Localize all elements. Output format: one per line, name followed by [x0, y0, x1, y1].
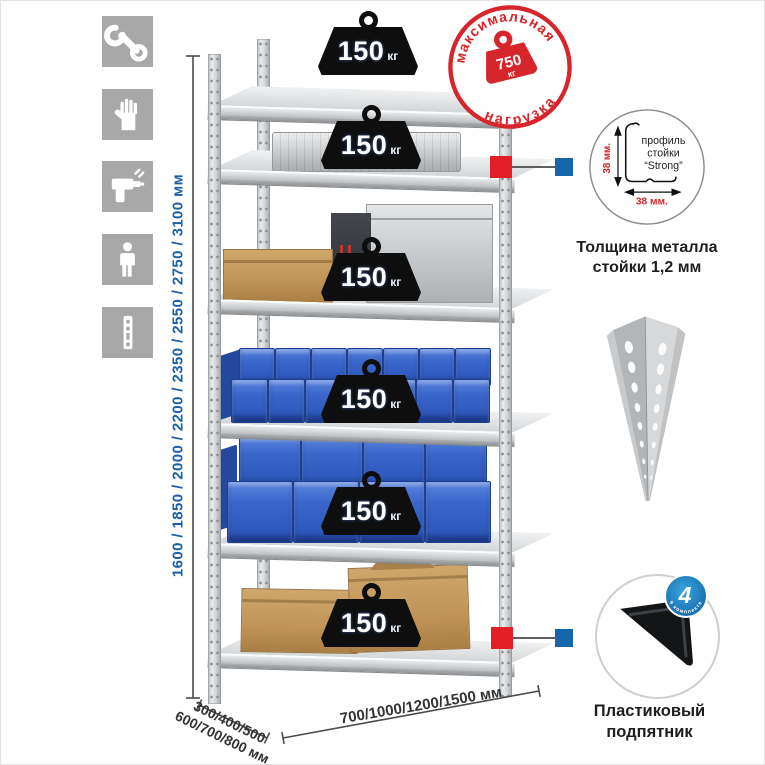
blue-bin-large [227, 481, 293, 543]
profile-label-line3: “Strong” [644, 160, 683, 172]
shelf-load-badge: 150кг [321, 105, 421, 169]
height-dimension-label: 1600 / 1850 / 2000 / 2200 / 2350 / 2550 … [170, 96, 187, 656]
blue-bin [453, 379, 490, 423]
rack-post-front-left [208, 54, 221, 704]
drill-icon [102, 161, 153, 212]
blue-bin [231, 379, 268, 423]
metal-thickness-caption: Толщина металла стойки 1,2 мм [564, 238, 730, 277]
shelf-load-badge: 150кг [318, 11, 418, 75]
load-unit: кг [390, 143, 401, 157]
load-value: 150 [341, 608, 388, 639]
load-value: 150 [341, 262, 388, 293]
shelving-product-infographic: 150кг 150кг 150кг 150кг 150кг 150кг макс… [0, 0, 765, 765]
load-unit: кг [390, 509, 401, 523]
plastic-foot-caption: Пластиковый подпятник [567, 701, 732, 742]
depth-dimension-label: 300/400/500 600/700/800 мм [142, 677, 309, 765]
blue-bin [416, 379, 453, 423]
perforated-strip-icon [102, 307, 153, 358]
profile-label-line1: профиль [641, 135, 685, 147]
shelf-load-badge: 150кг [321, 359, 421, 423]
load-value: 150 [341, 130, 388, 161]
load-value: 150 [338, 36, 385, 67]
blue-bin [268, 379, 305, 423]
load-unit: кг [390, 397, 401, 411]
quantity-value: 4 [678, 582, 692, 608]
metal-thickness-line2: стойки 1,2 мм [564, 258, 730, 278]
upright-profile-image [601, 303, 697, 533]
profile-vertical-dim: 38 мм. [602, 143, 613, 174]
gloves-icon [102, 89, 153, 140]
shelf-load-badge: 150кг [321, 471, 421, 535]
load-unit: кг [387, 49, 398, 63]
quantity-badge: 4 в комплекте [663, 573, 709, 619]
wrench-icon [102, 16, 153, 67]
blue-bin-large [425, 481, 491, 543]
callout-marker-red [490, 156, 512, 178]
shelf-load-badge: 150кг [321, 583, 421, 647]
cardboard-box [223, 249, 333, 303]
post-profile-callout: 38 мм. 38 мм. профиль стойки “Strong” [588, 108, 706, 226]
callout-marker-blue [555, 629, 573, 647]
depth-dimension-line2: 600/700/800 мм [142, 692, 302, 765]
load-unit: кг [390, 275, 401, 289]
load-unit: кг [390, 621, 401, 635]
callout-marker-blue [555, 158, 573, 176]
plastic-foot-line2: подпятник [567, 722, 732, 743]
person-icon [102, 234, 153, 285]
width-dimension-label: 700/1000/1200/1500 мм [301, 677, 541, 733]
profile-horizontal-dim: 38 мм. [636, 197, 668, 208]
callout-marker-red [491, 627, 513, 649]
metal-thickness-line1: Толщина металла [564, 238, 730, 258]
shelf-load-badge: 150кг [321, 237, 421, 301]
load-value: 150 [341, 496, 388, 527]
load-value: 150 [341, 384, 388, 415]
plastic-foot-line1: Пластиковый [567, 701, 732, 722]
profile-label-line2: стойки [647, 147, 680, 159]
